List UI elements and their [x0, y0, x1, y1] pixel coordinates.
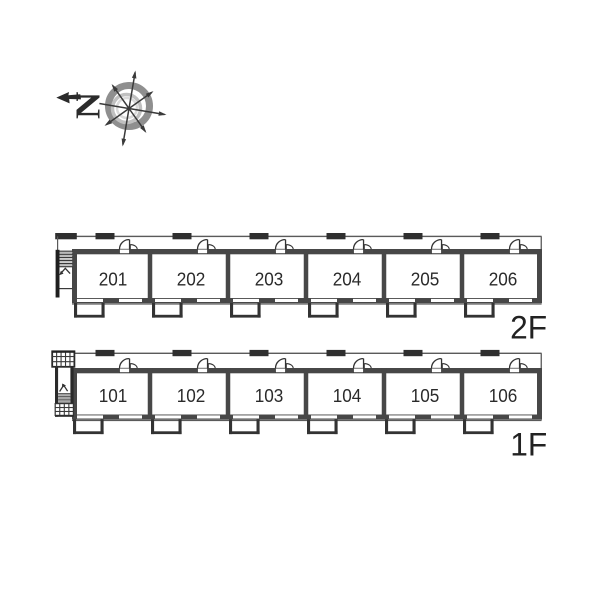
svg-text:2F: 2F	[510, 309, 547, 345]
svg-text:105: 105	[411, 385, 440, 406]
svg-text:106: 106	[489, 385, 518, 406]
svg-text:205: 205	[411, 269, 440, 290]
svg-text:102: 102	[177, 385, 206, 406]
svg-text:201: 201	[99, 269, 128, 290]
svg-text:104: 104	[333, 385, 362, 406]
svg-text:206: 206	[489, 269, 518, 290]
svg-text:203: 203	[255, 269, 284, 290]
svg-text:N: N	[69, 92, 108, 120]
svg-text:1F: 1F	[510, 427, 547, 463]
svg-text:103: 103	[255, 385, 284, 406]
svg-text:101: 101	[99, 385, 128, 406]
svg-text:204: 204	[333, 269, 362, 290]
svg-text:202: 202	[177, 269, 206, 290]
